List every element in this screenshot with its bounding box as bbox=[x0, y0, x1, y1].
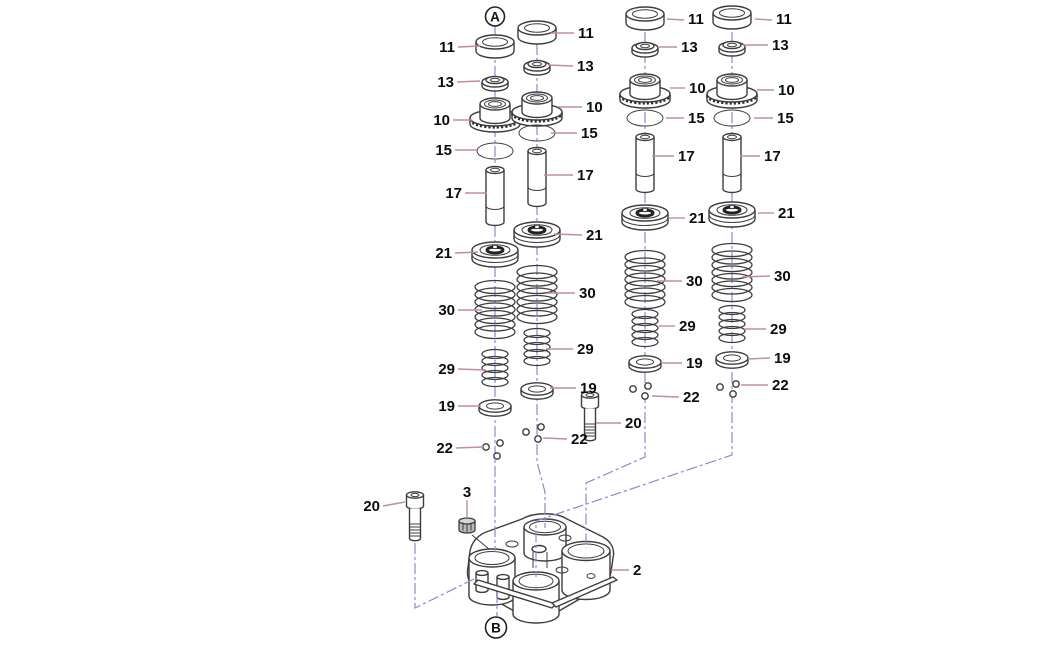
callout-label: 21 bbox=[435, 245, 452, 262]
spring-seat-part bbox=[512, 92, 562, 126]
callout-cap-col1: 11 bbox=[439, 39, 480, 56]
marker-b: B bbox=[486, 617, 507, 638]
callout-seal-col2: 13 bbox=[548, 58, 594, 75]
callout-label: 29 bbox=[577, 341, 594, 358]
callout-lifter-col3: 17 bbox=[652, 148, 695, 165]
washer-part bbox=[716, 352, 748, 368]
callout-keepers-col4: 22 bbox=[741, 377, 789, 394]
callout-oring-col4: 15 bbox=[754, 110, 794, 127]
callout-label: 19 bbox=[774, 350, 791, 367]
leader-line bbox=[457, 81, 480, 82]
leader-line bbox=[748, 358, 770, 359]
callout-oring-col1: 15 bbox=[435, 142, 477, 159]
callout-label: 22 bbox=[772, 377, 789, 394]
leader-line bbox=[667, 19, 684, 20]
leader-line bbox=[652, 396, 679, 397]
callout-label: 22 bbox=[436, 440, 453, 457]
callout-label: 15 bbox=[435, 142, 452, 159]
callout-label: 19 bbox=[580, 380, 597, 397]
valve-seal-part bbox=[482, 76, 508, 91]
cap-part bbox=[518, 21, 556, 44]
callout-lifter-col2: 17 bbox=[544, 167, 594, 184]
callout-lifter-col1: 17 bbox=[445, 185, 487, 202]
lifter-part bbox=[528, 148, 546, 207]
callout-label: 29 bbox=[438, 361, 455, 378]
callout-housing: 2 bbox=[611, 562, 641, 579]
leader-line bbox=[554, 234, 582, 235]
valve-seal-part bbox=[632, 42, 658, 57]
callout-cap-col2: 11 bbox=[551, 25, 594, 42]
callout-label: 13 bbox=[681, 39, 698, 56]
callout-label: 17 bbox=[678, 148, 695, 165]
callout-seal-col3: 13 bbox=[659, 39, 698, 56]
washer-part bbox=[479, 400, 511, 416]
callout-seal-col4: 13 bbox=[743, 37, 789, 54]
leader-line bbox=[383, 502, 405, 506]
callout-label: 29 bbox=[770, 321, 787, 338]
callout-seat-col3: 10 bbox=[670, 80, 706, 97]
callout-label: 19 bbox=[686, 355, 703, 372]
callout-lifter-col4: 17 bbox=[740, 148, 781, 165]
spring-seat-part bbox=[620, 74, 670, 108]
keeper-dot bbox=[538, 424, 544, 430]
callout-label: 10 bbox=[778, 82, 795, 99]
callout-label: 15 bbox=[777, 110, 794, 127]
keeper-dot bbox=[645, 383, 651, 389]
plug-part bbox=[459, 518, 475, 533]
washer-part bbox=[629, 356, 661, 372]
callout-label: 3 bbox=[463, 484, 471, 501]
callout-label: 17 bbox=[445, 185, 462, 202]
callout-label: 22 bbox=[683, 389, 700, 406]
marker-a: A bbox=[486, 7, 505, 26]
callout-inner-spring-col3: 29 bbox=[659, 318, 696, 335]
callout-bolt-middle: 20 bbox=[596, 415, 642, 432]
cap-part bbox=[626, 7, 664, 30]
callout-label: 29 bbox=[679, 318, 696, 335]
callout-label: 13 bbox=[577, 58, 594, 75]
housing-boss bbox=[532, 546, 546, 553]
callout-label: 22 bbox=[571, 431, 588, 448]
callout-inner-spring-col4: 29 bbox=[744, 321, 787, 338]
callout-oring-col2: 15 bbox=[551, 125, 598, 142]
callout-label: 11 bbox=[439, 39, 455, 56]
valve-seal-part bbox=[719, 41, 745, 56]
callout-inner-spring-col2: 29 bbox=[546, 341, 594, 358]
callout-outer-spring-col3: 30 bbox=[657, 273, 703, 290]
valve-seal-part bbox=[524, 60, 550, 75]
leader-line bbox=[742, 276, 770, 277]
keeper-dot bbox=[494, 453, 500, 459]
callout-bolt-left: 20 bbox=[363, 498, 405, 515]
callout-label: 11 bbox=[688, 11, 704, 28]
retainer-part bbox=[622, 205, 668, 230]
callout-label: 30 bbox=[579, 285, 596, 302]
keeper-dot bbox=[733, 381, 739, 387]
callout-cap-col3: 11 bbox=[667, 11, 704, 28]
callout-washer-col1: 19 bbox=[438, 398, 481, 415]
lifter-part bbox=[486, 167, 504, 226]
callout-label: 17 bbox=[577, 167, 594, 184]
callout-seat-col1: 10 bbox=[433, 112, 472, 129]
leader-line bbox=[458, 46, 480, 47]
callout-label: 20 bbox=[625, 415, 642, 432]
callout-label: 10 bbox=[433, 112, 450, 129]
callout-oring-col3: 15 bbox=[666, 110, 705, 127]
retainer-part bbox=[472, 242, 518, 267]
callout-plug: 3 bbox=[463, 484, 471, 517]
callout-label: 15 bbox=[688, 110, 705, 127]
keeper-dot bbox=[717, 384, 723, 390]
tappet-housing-part bbox=[467, 514, 617, 623]
marker-a-label: A bbox=[490, 10, 500, 25]
cap-part bbox=[476, 35, 514, 58]
callout-label: 11 bbox=[578, 25, 594, 42]
callout-washer-col3: 19 bbox=[661, 355, 703, 372]
keeper-dot bbox=[642, 393, 648, 399]
retainer-part bbox=[709, 202, 755, 227]
keeper-dot bbox=[497, 440, 503, 446]
callout-retainer-col4: 21 bbox=[758, 205, 795, 222]
callout-label: 30 bbox=[774, 268, 791, 285]
lifter-part bbox=[723, 134, 741, 193]
keeper-dot bbox=[483, 444, 489, 450]
callout-keepers-col1: 22 bbox=[436, 440, 483, 457]
callout-label: 21 bbox=[778, 205, 795, 222]
leader-line bbox=[548, 65, 573, 66]
callout-seal-col1: 13 bbox=[437, 74, 480, 91]
leader-line bbox=[543, 438, 567, 439]
callout-label: 13 bbox=[772, 37, 789, 54]
cap-part bbox=[713, 6, 751, 29]
callout-outer-spring-col4: 30 bbox=[742, 268, 791, 285]
lifter-part bbox=[636, 134, 654, 193]
leader-line bbox=[455, 252, 478, 253]
callout-keepers-col3: 22 bbox=[652, 389, 700, 406]
callout-label: 10 bbox=[689, 80, 706, 97]
leader-line bbox=[458, 369, 486, 370]
callout-washer-col4: 19 bbox=[748, 350, 791, 367]
callout-label: 19 bbox=[438, 398, 455, 415]
callout-inner-spring-col1: 29 bbox=[438, 361, 486, 378]
marker-b-label: B bbox=[491, 621, 501, 636]
callout-label: 2 bbox=[633, 562, 641, 579]
callout-label: 30 bbox=[686, 273, 703, 290]
callout-label: 30 bbox=[438, 302, 455, 319]
keeper-dot bbox=[630, 386, 636, 392]
callout-seat-col4: 10 bbox=[757, 82, 795, 99]
callout-washer-col2: 19 bbox=[550, 380, 597, 397]
keeper-dot bbox=[523, 429, 529, 435]
keeper-dot bbox=[730, 391, 736, 397]
callout-label: 21 bbox=[689, 210, 706, 227]
washer-part bbox=[521, 383, 553, 399]
callout-label: 17 bbox=[764, 148, 781, 165]
callout-label: 11 bbox=[776, 11, 792, 28]
exploded-parts-diagram: 11 13 10 15 17 21 30 29 19 22 20 11 13 1… bbox=[0, 0, 1044, 655]
callout-seat-col2: 10 bbox=[558, 99, 603, 116]
callout-keepers-col2: 22 bbox=[543, 431, 588, 448]
callout-retainer-col2: 21 bbox=[554, 227, 603, 244]
callout-retainer-col3: 21 bbox=[669, 210, 706, 227]
callout-label: 15 bbox=[581, 125, 598, 142]
callout-label: 21 bbox=[586, 227, 603, 244]
retainer-part bbox=[514, 222, 560, 247]
leader-line bbox=[456, 447, 483, 448]
callout-label: 20 bbox=[363, 498, 380, 515]
leader-line bbox=[755, 19, 772, 20]
callout-label: 13 bbox=[437, 74, 454, 91]
diagram-svg: 11 13 10 15 17 21 30 29 19 22 20 11 13 1… bbox=[0, 0, 1044, 655]
callout-label: 10 bbox=[586, 99, 603, 116]
callout-cap-col4: 11 bbox=[755, 11, 792, 28]
centerline-bolt-left bbox=[415, 543, 474, 608]
mounting-bolt-left bbox=[407, 492, 424, 541]
spring-seat-part bbox=[707, 74, 757, 108]
keeper-dot bbox=[535, 436, 541, 442]
